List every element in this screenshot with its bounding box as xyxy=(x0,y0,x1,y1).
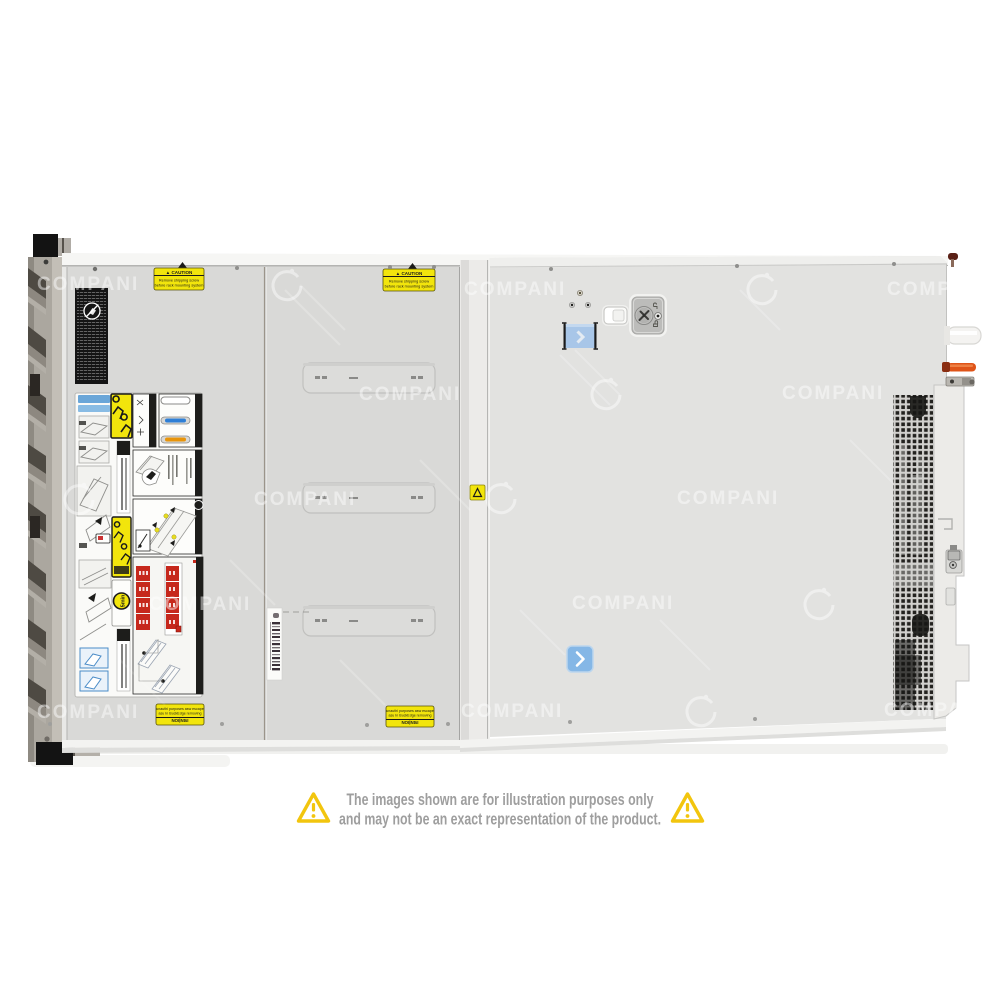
svg-text:asu In BuckEdge removing: asu In BuckEdge removing xyxy=(389,714,432,718)
svg-text:COMPANI: COMPANI xyxy=(464,279,566,300)
svg-text:Remove shipping screw: Remove shipping screw xyxy=(389,280,430,284)
svg-text:COMPANI: COMPANI xyxy=(37,702,139,723)
svg-text:asu In BuckEdge removing: asu In BuckEdge removing xyxy=(159,712,202,716)
svg-text:▲ CAUTION: ▲ CAUTION xyxy=(166,270,193,275)
svg-text:COMPANI: COMPANI xyxy=(37,274,139,295)
svg-text:5min: 5min xyxy=(121,595,127,608)
svg-text:COMPANI: COMPANI xyxy=(254,489,356,510)
svg-text:COMPANI: COMPANI xyxy=(677,488,779,509)
svg-text:and may not be an exact repres: and may not be an exact representation o… xyxy=(339,810,661,829)
svg-text:▲ CAUTION: ▲ CAUTION xyxy=(396,271,423,276)
svg-text:COMPANI: COMPANI xyxy=(359,384,461,405)
svg-text:Remove shipping screw: Remove shipping screw xyxy=(159,279,200,283)
svg-text:unauthi purposes asw escape: unauthi purposes asw escape xyxy=(156,707,204,711)
svg-text:NOIļNʦI: NOIļNʦI xyxy=(172,718,189,723)
svg-text:COMPANI: COMPANI xyxy=(572,593,674,614)
svg-text:unauthi purposes asw escape: unauthi purposes asw escape xyxy=(386,709,434,713)
svg-text:before rack mounting system: before rack mounting system xyxy=(155,284,204,288)
svg-text:COMPANI: COMPANI xyxy=(782,383,884,404)
svg-text:The images shown are for illus: The images shown are for illustration pu… xyxy=(347,790,654,809)
svg-text:COMPANI: COMPANI xyxy=(149,594,251,615)
svg-text:COMPANI: COMPANI xyxy=(461,701,563,722)
svg-text:NOIļNʦI: NOIļNʦI xyxy=(402,720,419,725)
svg-text:before rack mounting system: before rack mounting system xyxy=(385,285,434,289)
svg-text:COMPANI: COMPANI xyxy=(884,700,986,721)
svg-text:COMPANI: COMPANI xyxy=(887,279,989,300)
